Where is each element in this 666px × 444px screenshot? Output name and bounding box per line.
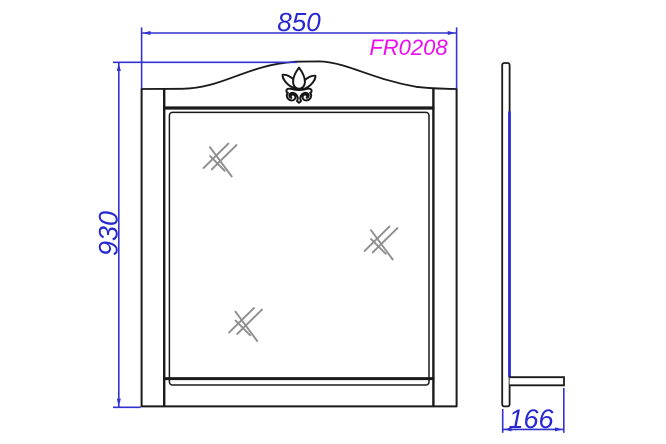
- svg-text:FR0208: FR0208: [369, 35, 448, 60]
- svg-text:930: 930: [94, 211, 124, 256]
- svg-text:850: 850: [277, 7, 321, 37]
- svg-text:166: 166: [508, 404, 554, 434]
